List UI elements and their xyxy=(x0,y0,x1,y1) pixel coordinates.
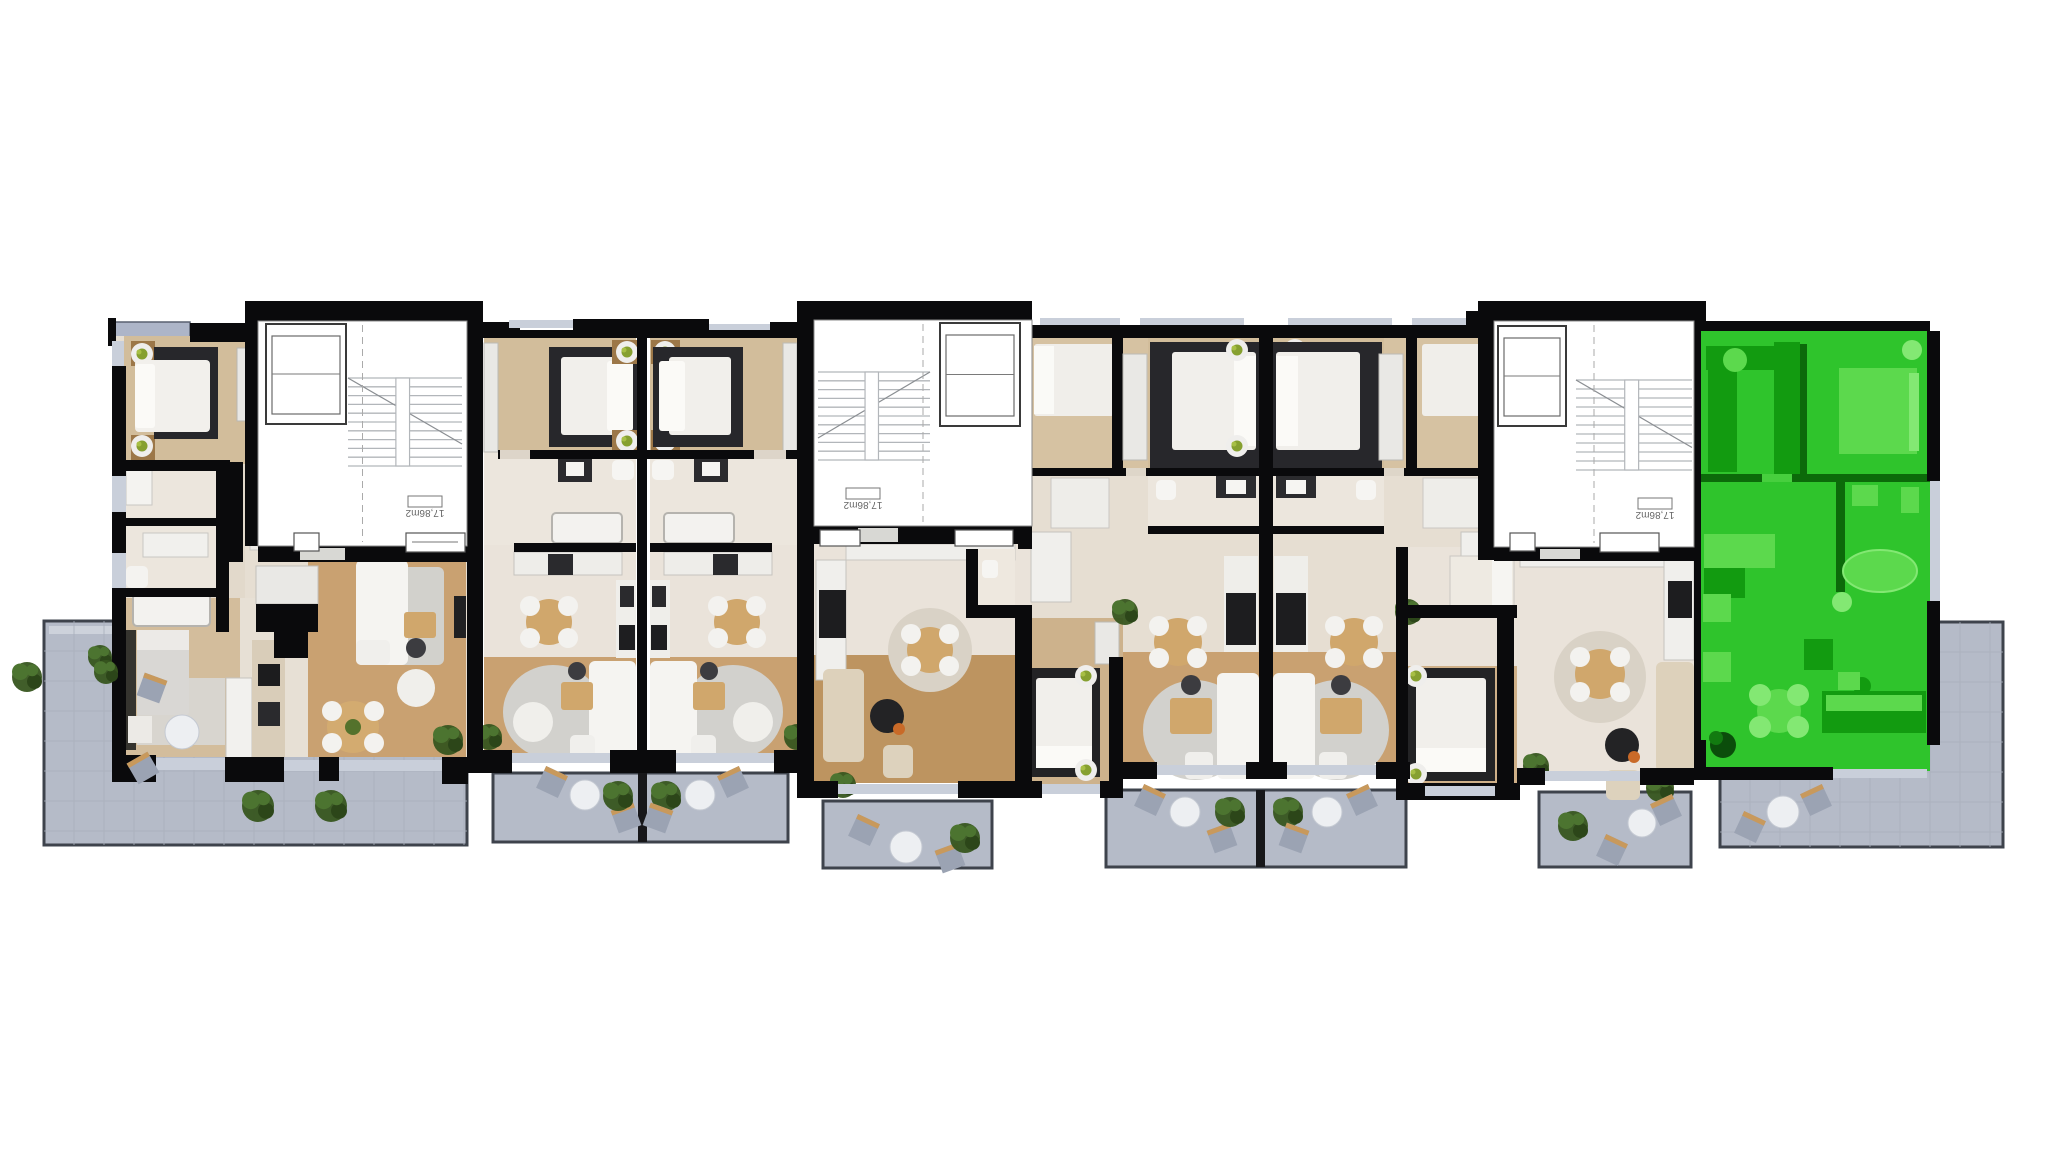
svg-text:17,86m2: 17,86m2 xyxy=(1635,509,1674,520)
svg-text:17,86m2: 17,86m2 xyxy=(843,499,882,510)
svg-text:17,86m2: 17,86m2 xyxy=(405,507,444,518)
